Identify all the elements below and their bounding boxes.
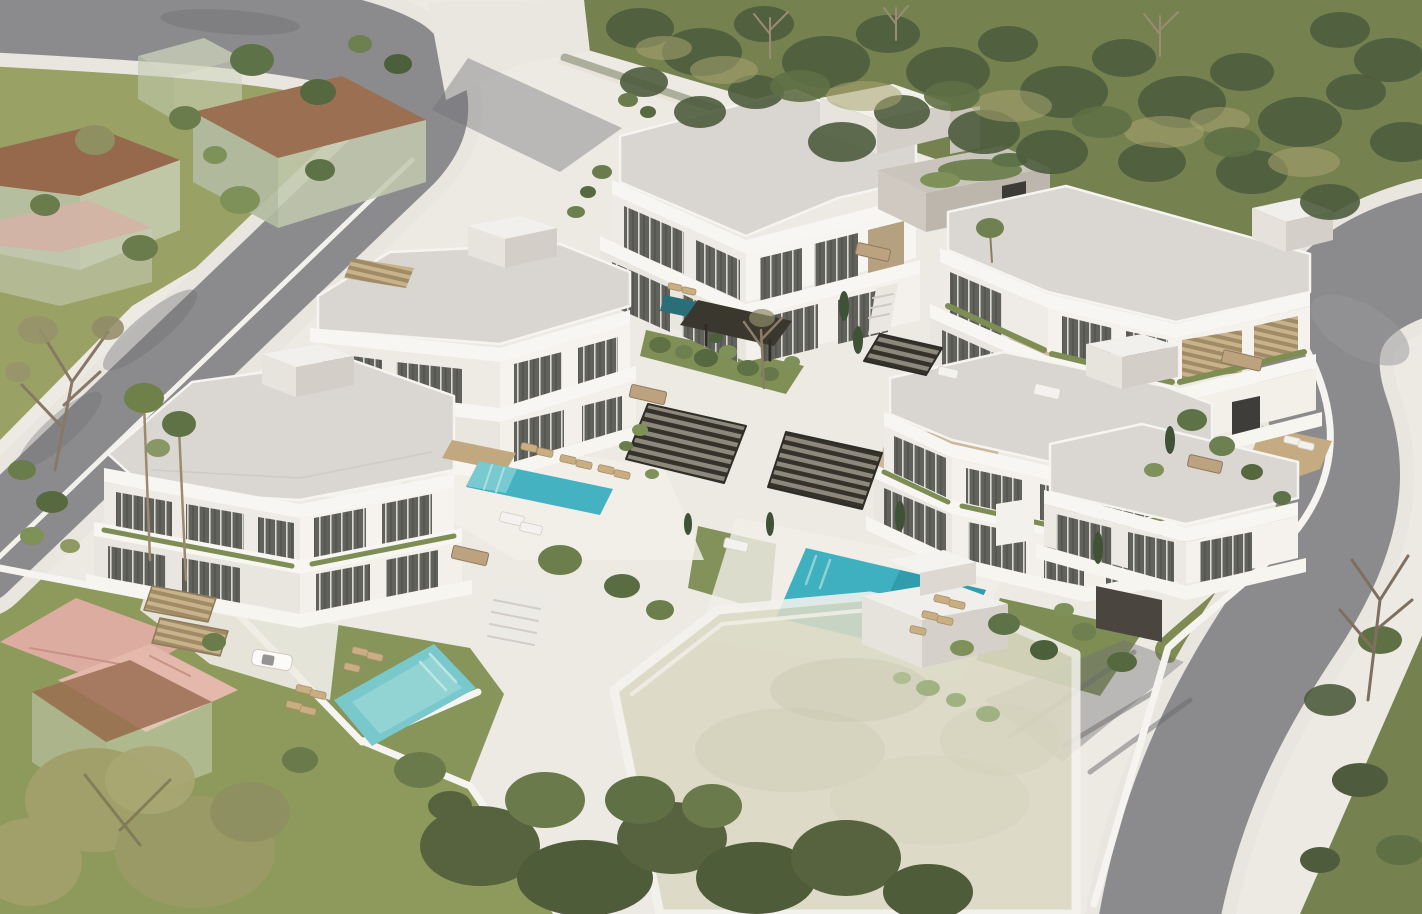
left-garden-bush: [60, 539, 80, 553]
garden-shrub: [580, 186, 596, 198]
tree-canopy: [92, 316, 124, 340]
khaki-tree: [210, 782, 290, 842]
garden-shrub: [675, 345, 693, 359]
scrub-bush: [978, 26, 1038, 62]
olive-tree: [505, 772, 585, 828]
tree-canopy: [162, 411, 196, 437]
cypress: [839, 291, 849, 321]
tree-canopy: [146, 439, 170, 457]
lawn-tree: [202, 633, 226, 651]
garage-roof-plants: [920, 172, 960, 188]
scrub-light-patch: [636, 36, 692, 60]
tree-canopy: [538, 545, 582, 575]
scrub-bush: [734, 6, 794, 42]
cypress: [853, 326, 863, 354]
garden-shrub: [649, 337, 671, 353]
khaki-tree: [105, 746, 195, 814]
scrub-light-patch: [690, 56, 758, 84]
tree-canopy: [220, 186, 260, 214]
scrub-bush: [808, 122, 876, 162]
scrub-light-patch: [972, 90, 1052, 122]
sage-bush: [916, 680, 940, 696]
scrub-bush: [674, 96, 726, 128]
sage-bush: [893, 672, 911, 684]
scrub-bush-mid: [924, 81, 980, 111]
tree-canopy: [75, 125, 115, 155]
aerial-render-screenshot: [0, 0, 1422, 914]
planter-bush: [619, 441, 633, 451]
garden-shrub: [567, 206, 585, 218]
scrub-bush: [1118, 142, 1186, 182]
planter-bush: [632, 424, 648, 436]
left-garden-bush: [20, 527, 44, 545]
sage-bush: [976, 706, 1000, 722]
curve-garden-shrub: [1144, 463, 1164, 477]
tree-canopy: [305, 159, 335, 181]
curve-garden-shrub: [1177, 409, 1207, 431]
tree-canopy: [749, 309, 775, 327]
scrub-bush: [856, 15, 920, 53]
curve-garden-shrub: [1273, 491, 1291, 505]
olive-tree: [791, 820, 901, 896]
curve-garden-shrub: [1209, 436, 1235, 456]
scrub-bush: [620, 67, 668, 97]
tree-canopy: [30, 194, 60, 216]
tree-canopy: [604, 574, 640, 598]
cypress: [1093, 532, 1103, 564]
garden-shrub: [737, 360, 759, 376]
verge-bush: [1376, 835, 1422, 865]
tree-canopy: [5, 362, 31, 382]
left-garden-bush: [8, 460, 36, 480]
scrub-bush: [1300, 184, 1360, 220]
scrub-bush-mid: [1072, 106, 1132, 138]
scene-shapes: [0, 0, 1422, 914]
garden-shrub: [988, 613, 1020, 635]
tree-canopy: [122, 235, 158, 261]
scrub-bush-mid: [1204, 127, 1260, 157]
tree-canopy: [230, 44, 274, 76]
cypress: [684, 513, 692, 535]
verge-bush: [1300, 847, 1340, 873]
garden-shrub: [719, 345, 737, 359]
garden-shrub: [950, 640, 974, 656]
olive-tree: [605, 776, 675, 824]
scrub-light-patch: [1268, 147, 1340, 177]
scrub-bush: [1092, 39, 1156, 77]
villa6-sidebox: [996, 498, 1034, 546]
tree-canopy: [646, 600, 674, 620]
cypress: [1165, 426, 1175, 454]
scrub-bush: [1310, 12, 1370, 48]
garden-shrub: [1072, 623, 1096, 641]
tree-canopy: [348, 35, 372, 53]
planter-bush: [645, 469, 659, 479]
scrub-bush: [1210, 53, 1274, 91]
tree-canopy: [300, 79, 336, 105]
lawn-bush: [394, 752, 446, 788]
tree-canopy: [124, 383, 164, 413]
olive-tree: [682, 784, 742, 828]
cypress: [895, 501, 905, 531]
tree-canopy: [976, 218, 1004, 238]
tree-canopy: [18, 316, 58, 344]
garden-shrub: [1107, 652, 1137, 672]
garden-shrub: [709, 333, 723, 343]
garden-shrub: [784, 356, 800, 368]
villa-development-site-plan: [0, 0, 1422, 914]
tree-canopy: [384, 54, 412, 74]
cypress: [766, 512, 774, 536]
scrub-bush-mid: [770, 70, 830, 102]
garden-shrub: [1054, 603, 1074, 617]
garden-shrub: [592, 165, 612, 179]
tree-canopy: [203, 146, 227, 164]
scrub-bush: [1258, 97, 1342, 147]
enclosure-mottle: [770, 658, 930, 722]
left-garden-bush: [36, 491, 68, 513]
lawn-bush: [428, 791, 472, 821]
verge-bush: [1332, 763, 1388, 797]
sage-bush: [946, 693, 966, 707]
garden-shrub: [1030, 640, 1058, 660]
enclosure-mottle: [940, 704, 1060, 776]
scrub-light-patch: [826, 81, 902, 111]
path-shrub: [640, 106, 656, 118]
garden-shrub: [694, 349, 718, 367]
curve-garden-shrub: [1241, 464, 1263, 480]
path-shrub: [618, 93, 638, 107]
verge-bush: [1304, 684, 1356, 716]
lawn-bush: [282, 747, 318, 773]
car-windshield: [261, 654, 275, 666]
tree-canopy: [169, 106, 201, 130]
scrub-bush: [1016, 130, 1088, 174]
